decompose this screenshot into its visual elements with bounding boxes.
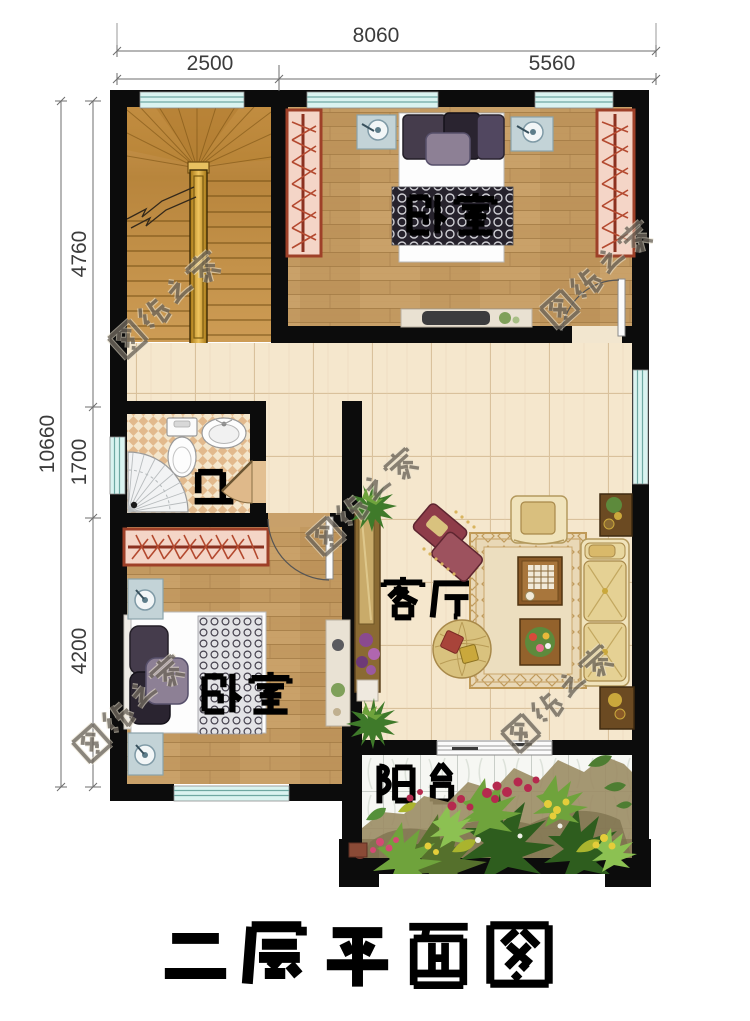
svg-text:10660: 10660 [36, 415, 59, 473]
svg-text:4760: 4760 [68, 231, 91, 278]
svg-text:4200: 4200 [68, 628, 91, 675]
svg-text:1700: 1700 [68, 439, 91, 486]
svg-text:5560: 5560 [529, 52, 576, 75]
svg-text:2500: 2500 [187, 52, 234, 75]
svg-text:8060: 8060 [353, 24, 400, 47]
